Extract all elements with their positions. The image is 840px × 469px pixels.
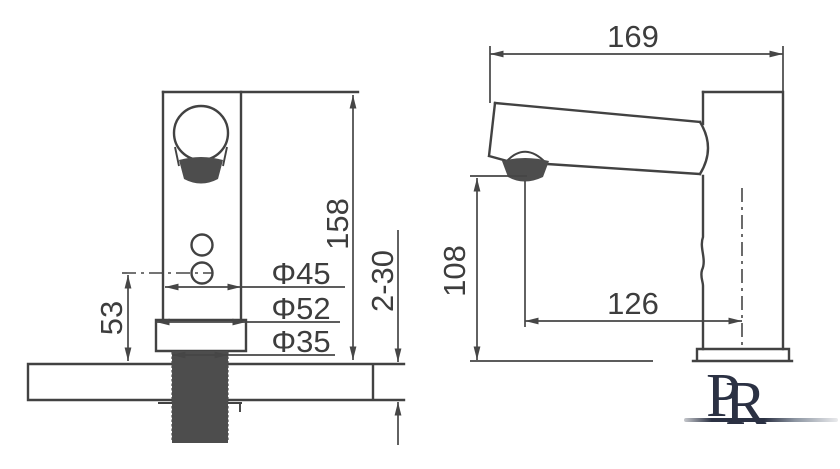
front-aerator-outlet: [179, 157, 223, 184]
dim-text-outlet-height: 108: [437, 245, 472, 297]
side-spout-top-edge: [495, 103, 700, 122]
front-spout-circle: [174, 106, 228, 160]
side-view-dimensions: 169 108 126: [437, 19, 783, 361]
dim-text-base-diameter: Φ52: [271, 291, 330, 326]
dim-ext-outlet-height: [470, 176, 653, 361]
side-column-left-lower: [701, 176, 703, 349]
side-aerator-outlet: [502, 158, 549, 182]
front-view-dimensions: Φ45 Φ52 Φ35 158 53 2-30: [94, 95, 400, 445]
dim-text-body-diameter: Φ45: [271, 256, 330, 291]
side-column-top-right: [703, 92, 783, 349]
brand-logo: P R: [692, 366, 840, 436]
faucet-dimension-drawing: Φ45 Φ52 Φ35 158 53 2-30: [0, 0, 840, 469]
dim-text-total-height: 158: [320, 198, 355, 250]
dim-text-deck-thickness: 2-30: [365, 250, 400, 312]
side-base-flange: [693, 349, 792, 361]
front-view: [28, 92, 404, 443]
dim-text-total-length: 169: [607, 19, 659, 54]
front-sensor-upper-circle: [192, 235, 213, 256]
dim-text-sensor-height: 53: [94, 301, 129, 335]
dim-text-shank-diameter: Φ35: [271, 324, 330, 359]
logo-letter-r: R: [725, 380, 766, 430]
front-threaded-shank: [172, 351, 228, 443]
dim-text-spout-reach: 126: [607, 286, 659, 321]
front-base: [156, 320, 246, 351]
side-spout-joint-bulge: [700, 122, 708, 174]
